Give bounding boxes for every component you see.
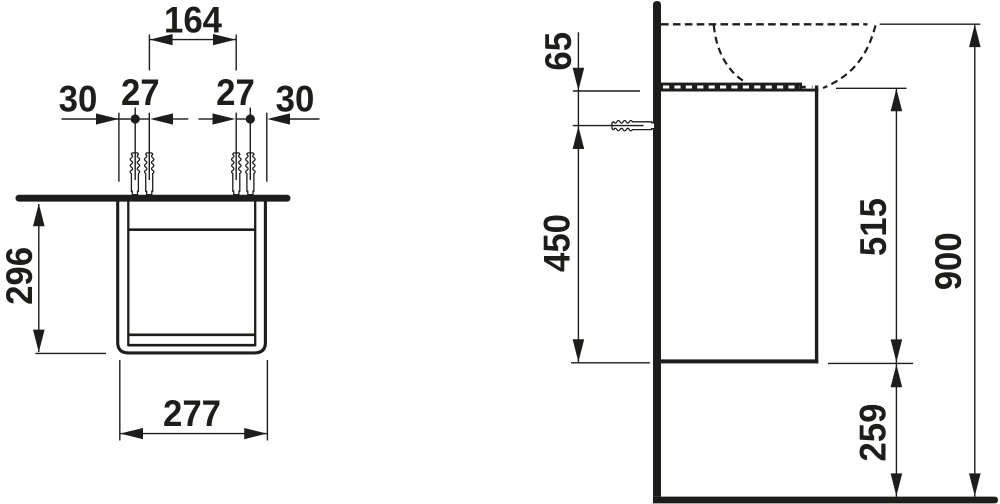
svg-text:30: 30 [276, 79, 315, 120]
svg-text:515: 515 [853, 198, 894, 256]
svg-text:296: 296 [0, 247, 40, 305]
svg-text:65: 65 [538, 32, 579, 71]
svg-text:900: 900 [928, 232, 969, 290]
svg-text:27: 27 [121, 72, 160, 113]
svg-text:30: 30 [59, 79, 98, 120]
svg-text:450: 450 [537, 214, 578, 272]
svg-text:277: 277 [163, 393, 221, 434]
svg-text:259: 259 [852, 404, 893, 462]
svg-text:27: 27 [216, 72, 255, 113]
